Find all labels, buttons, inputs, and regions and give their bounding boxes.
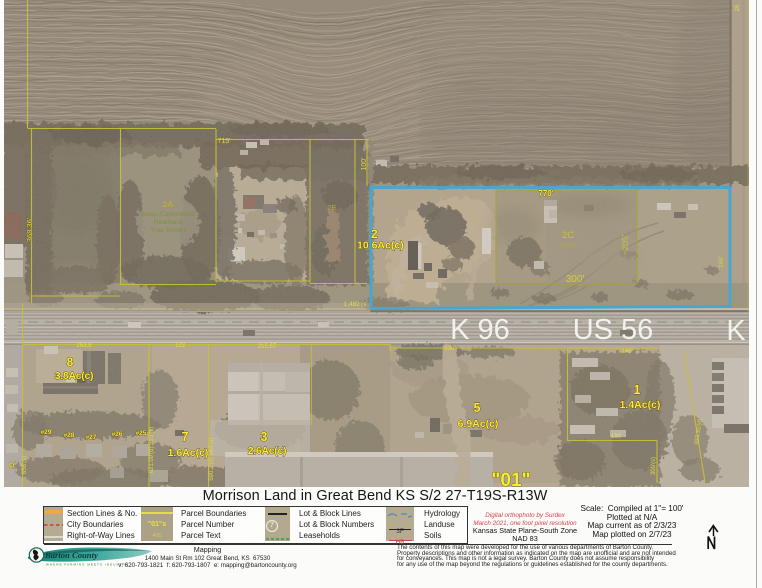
svg-text:1: 1 [634, 383, 641, 397]
svg-text:123: 123 [175, 343, 186, 349]
svg-text:Barton County: Barton County [44, 550, 98, 560]
svg-text:1.6Ac(c): 1.6Ac(c) [168, 447, 209, 459]
svg-text:#27: #27 [86, 434, 97, 441]
svg-text:26: 26 [735, 4, 741, 11]
svg-text:Heartland: Heartland [154, 219, 183, 226]
svg-text:1.4Ac(c): 1.4Ac(c) [620, 399, 661, 411]
svg-text:263.8: 263.8 [76, 343, 92, 349]
svg-text:656'(s): 656'(s) [22, 456, 28, 474]
svg-text:300': 300' [566, 274, 585, 285]
svg-text:2.6Ac(c): 2.6Ac(c) [248, 445, 286, 457]
svg-text:530': 530' [444, 346, 455, 352]
svg-text:715': 715' [217, 138, 230, 145]
svg-text:7: 7 [182, 430, 189, 444]
svg-text:Acme: Acme [559, 242, 577, 249]
svg-text:2A: 2A [163, 199, 174, 209]
svg-text:770': 770' [538, 189, 553, 198]
svg-text:268': 268' [718, 256, 725, 268]
svg-text:100': 100' [361, 157, 368, 170]
svg-text:10 6Ac(c): 10 6Ac(c) [357, 240, 404, 252]
svg-text:590.2'(d) 563'(s): 590.2'(d) 563'(s) [209, 437, 215, 480]
svg-text:#25: #25 [136, 430, 147, 437]
svg-text:3.8Ac(c): 3.8Ac(c) [55, 370, 93, 382]
svg-text:c(: c( [9, 462, 16, 469]
svg-text:368.36': 368.36' [25, 217, 34, 242]
svg-text:3: 3 [261, 430, 268, 444]
svg-text:K 96: K 96 [450, 314, 510, 346]
svg-text:8: 8 [67, 355, 74, 369]
svg-text:K: K [726, 315, 746, 347]
svg-text:US 56: US 56 [573, 314, 654, 346]
svg-text:621.09'(d) 593'(s): 621.09'(d) 593'(s) [149, 427, 155, 474]
svg-text:~205': ~205' [620, 234, 630, 255]
svg-text:2C: 2C [562, 230, 574, 241]
svg-text:246': 246' [621, 349, 632, 355]
svg-text:190: 190 [611, 434, 622, 440]
svg-text:215.67: 215.67 [258, 344, 277, 350]
svg-text:#28: #28 [64, 432, 75, 439]
svg-text:Bates-Calderwood: Bates-Calderwood [141, 211, 195, 218]
svg-text:6.9Ac(c): 6.9Ac(c) [458, 418, 499, 430]
svg-text:Tree Service: Tree Service [151, 227, 188, 234]
svg-text:2E: 2E [327, 203, 336, 212]
svg-text:300'(s): 300'(s) [651, 457, 657, 475]
svg-text:1,482'(s: 1,482'(s [344, 301, 368, 308]
svg-text:#26: #26 [112, 431, 123, 438]
svg-text:#29: #29 [41, 429, 52, 436]
svg-text:5: 5 [474, 401, 481, 415]
